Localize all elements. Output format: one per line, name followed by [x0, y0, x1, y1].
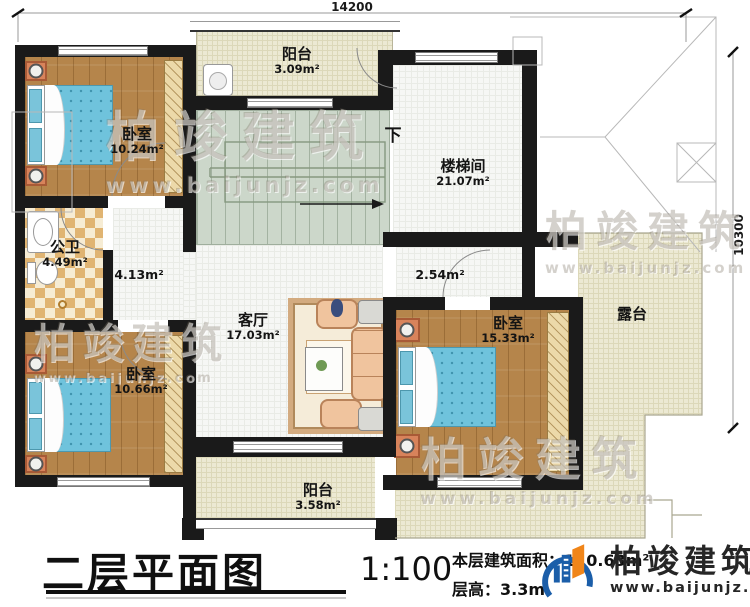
watermark-company: 柏竣建筑	[33, 310, 229, 371]
armchair	[320, 399, 362, 429]
bed-pillow	[29, 382, 42, 414]
lamp-icon	[29, 64, 44, 79]
room-area: 2.54m²	[415, 268, 464, 282]
wall	[15, 196, 196, 208]
door-opening	[108, 196, 165, 208]
side-table	[358, 407, 386, 431]
room-label-terrace: 露台	[617, 306, 647, 323]
window	[57, 477, 150, 487]
dimension-top: 14200	[331, 0, 373, 14]
window	[58, 46, 148, 56]
company-logo: 柏竣建筑 www.baijunjz.com	[538, 538, 746, 602]
nightstand	[394, 434, 420, 458]
watermark-company: 柏竣建筑	[545, 198, 749, 259]
room-label-balcony-bottom: 阳台 3.58m²	[295, 482, 340, 512]
lamp-icon	[29, 169, 44, 184]
room-label-hallway-right: 2.54m²	[415, 268, 464, 282]
room-name: 卧室	[481, 315, 534, 332]
title-underline	[46, 590, 346, 594]
watermark-company: 柏竣建筑	[420, 423, 658, 489]
balcony-railing	[196, 518, 376, 529]
watermark-website: www.baijunjz.com	[545, 259, 749, 277]
watermark: 柏竣建筑 www.baijunjz.com	[545, 198, 749, 277]
lamp-icon	[29, 457, 44, 472]
plant	[316, 360, 327, 371]
nightstand	[25, 166, 47, 186]
room-area: 4.49m²	[42, 256, 87, 269]
room-label-bathroom: 公卫 4.49m²	[42, 239, 87, 269]
door-opening	[445, 297, 490, 310]
company-website: www.baijunjz.com	[610, 581, 750, 596]
watermark-website: www.baijunjz.com	[105, 173, 384, 197]
room-name: 卧室	[114, 366, 167, 383]
floor-drain	[58, 300, 67, 309]
balcony-bottom-floor	[196, 457, 375, 520]
side-table	[358, 300, 386, 324]
room-name: 卧室	[110, 126, 163, 143]
room-name: 客厅	[226, 312, 279, 329]
wall-pillar	[375, 518, 397, 540]
room-name: 阳台	[274, 46, 319, 63]
wall	[15, 45, 25, 487]
stairs-down-text: 下	[385, 127, 402, 147]
room-area: 21.07m²	[436, 175, 489, 188]
company-logo-icon	[538, 539, 604, 601]
window	[415, 52, 498, 63]
company-name: 柏竣建筑	[610, 545, 750, 577]
room-area: 3.58m²	[295, 499, 340, 512]
wall	[383, 297, 396, 457]
bed-pillow	[29, 128, 42, 162]
floor-height-line: 层高：3.3m	[452, 576, 545, 600]
room-label-stairwell: 楼梯间 21.07m²	[436, 158, 489, 188]
room-label-hallway: 4.13m²	[114, 268, 163, 282]
bed-pillow	[400, 390, 413, 424]
person-figure	[331, 299, 343, 317]
toilet-tank	[27, 262, 36, 284]
room-area: 4.13m²	[114, 268, 163, 282]
nightstand	[394, 318, 420, 342]
floor-height-label: 层高：	[452, 580, 500, 599]
window	[233, 441, 343, 453]
bed-pillow	[29, 89, 42, 123]
title-underline-thin	[46, 597, 346, 599]
wall	[383, 232, 522, 247]
nightstand	[25, 61, 47, 81]
nightstand	[25, 455, 47, 473]
floor-plan-image: 柏竣建筑 www.baijunjz.com 柏竣建筑 www.baijunjz.…	[0, 0, 750, 607]
washing-machine-door	[209, 72, 227, 90]
room-label-balcony-top: 阳台 3.09m²	[274, 46, 319, 76]
wall	[522, 65, 537, 232]
lamp-icon	[400, 439, 415, 454]
room-name: 公卫	[42, 239, 87, 256]
room-name: 楼梯间	[436, 158, 489, 175]
balcony-railing	[190, 21, 400, 32]
room-name: 阳台	[295, 482, 340, 499]
room-area: 10.66m²	[114, 383, 167, 396]
hallway-floor	[113, 208, 183, 320]
room-label-bedroom-top-left: 卧室 10.24m²	[110, 126, 163, 156]
bed-pillow	[29, 418, 42, 450]
room-name: 露台	[617, 306, 647, 323]
room-area: 15.33m²	[481, 332, 534, 345]
lamp-icon	[400, 323, 415, 338]
bed-pillow	[400, 351, 413, 385]
watermark-website: www.baijunjz.com	[420, 489, 658, 509]
room-label-living-room: 客厅 17.03m²	[226, 312, 279, 342]
stairwell-floor	[393, 65, 522, 232]
stairs-down-label: 下	[385, 127, 402, 147]
room-label-bedroom-right: 卧室 15.33m²	[481, 315, 534, 345]
room-label-bedroom-bottom-left: 卧室 10.66m²	[114, 366, 167, 396]
room-area: 10.24m²	[110, 143, 163, 156]
room-area: 17.03m²	[226, 329, 279, 342]
watermark: 柏竣建筑 www.baijunjz.com	[420, 423, 658, 509]
room-area: 3.09m²	[274, 63, 319, 76]
plan-scale: 1:100	[360, 550, 452, 588]
